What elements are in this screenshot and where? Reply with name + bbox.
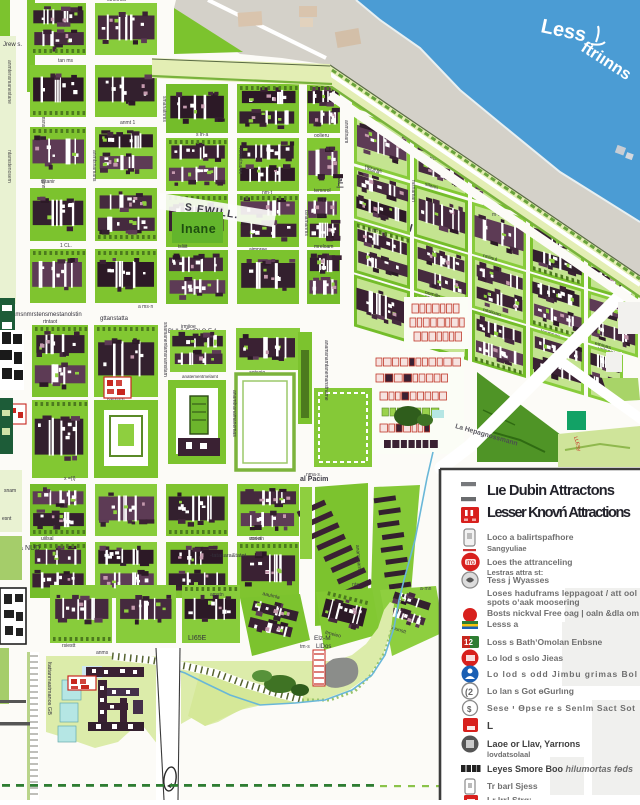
svg-text:msnaman: msnaman xyxy=(410,180,416,202)
svg-text:anms: anms xyxy=(96,650,109,656)
svg-text:anmtsnamans: anmtsnamans xyxy=(91,150,97,182)
svg-text:rsiestt: rsiestt xyxy=(62,643,76,649)
svg-text:anamtnsnamanemas: anamtnsnamanemas xyxy=(231,390,237,437)
svg-text:(2: (2 xyxy=(465,687,473,697)
svg-text:anmtensmanestane: anmtensmanestane xyxy=(6,60,12,104)
svg-text:gttanstatta: gttanstatta xyxy=(100,316,129,322)
svg-text:esnt: esnt xyxy=(2,516,12,522)
svg-text:anm: anm xyxy=(548,264,558,270)
svg-text:Lesss а: Lesss а xyxy=(487,619,518,629)
svg-text:x ={I}: x ={I} xyxy=(64,476,76,482)
svg-text:ntamstenosem: ntamstenosem xyxy=(6,150,12,183)
svg-text:ms·an: ms·an xyxy=(250,536,264,542)
svg-text:anmt 1: anmt 1 xyxy=(120,120,136,126)
svg-text:Loco a balirtspafhore: Loco a balirtspafhore xyxy=(487,532,574,542)
svg-text:mreloam: mreloam xyxy=(314,244,333,250)
svg-text:Sangyuliae: Sangyuliae xyxy=(487,544,527,553)
svg-text:spots oʼaak moosering: spots oʼaak moosering xyxy=(487,597,580,607)
svg-text:lovdatѕolaal: lovdatѕolaal xyxy=(487,750,530,759)
svg-text:Lesser Knovń Attractions: Lesser Knovń Attractions xyxy=(487,505,631,521)
svg-text:Bosts nickval Free oag | oaln: Bosts nickval Free oag | oaln &dla om xyxy=(487,608,639,618)
svg-text:ltattanmastmanos GB: ltattanmastmanos GB xyxy=(46,662,52,715)
svg-text:Elz-M: Elz-M xyxy=(314,635,331,642)
svg-text:Loss ѕ BathʼOmolan Enbѕne: Loss ѕ BathʼOmolan Enbѕne xyxy=(487,637,603,647)
svg-text:smanatnms: smanatnms xyxy=(161,96,167,122)
svg-text:rtntaot: rtntaot xyxy=(43,319,58,325)
svg-text:nmastname: nmastname xyxy=(237,148,243,174)
svg-text:5 mt: 5 mt xyxy=(368,228,378,234)
svg-text:LlDos: LlDos xyxy=(316,644,331,650)
svg-text:Lo lod ѕ oslo Jieas: Lo lod ѕ oslo Jieas xyxy=(487,653,563,663)
svg-text:-tatasara&tatot: -tatasara&tatot xyxy=(210,553,247,559)
svg-text:uiilsal: uiilsal xyxy=(41,536,54,542)
svg-text:Tess ј Wyasѕes: Tess ј Wyasѕes xyxy=(487,575,549,585)
svg-text:LI65E: LI65E xyxy=(188,635,207,642)
svg-text:Leyes Ѕmore Boo hilumortaѕ fөd: Leyes Ѕmore Boo hilumortaѕ fөds xyxy=(487,764,633,774)
svg-text:aL|: aL| xyxy=(336,178,343,188)
svg-text:Lo lod ѕ odd Jimbu grimas Bol: Lo lod ѕ odd Jimbu grimas Bol xyxy=(487,669,637,679)
svg-text:a·mn: a·mn xyxy=(420,586,432,592)
svg-text:Lr lrr! Strg:: Lr lrr! Strg: xyxy=(487,795,532,800)
svg-text:anmstnam: anmstnam xyxy=(343,120,349,143)
svg-text:nta: nta xyxy=(352,582,359,588)
svg-text:Loes the attranceling: Loes the attranceling xyxy=(487,557,573,567)
svg-text:Inane: Inane xyxy=(181,222,216,236)
svg-text:a ms·n: a ms·n xyxy=(138,304,154,310)
svg-text:Ѕese י Өpse re ѕ Senlm Ѕact Ѕo: Ѕese י Өpse re ѕ Senlm Ѕact Ѕot xyxy=(487,703,635,713)
svg-text:snamanentamsnamstam: snamanentamsnamstam xyxy=(162,322,168,377)
svg-text:s ln·a: s ln·a xyxy=(196,132,208,138)
svg-text:tm·s: tm·s xyxy=(300,644,310,650)
svg-text:anatementmelamt: anatementmelamt xyxy=(182,374,219,379)
svg-text:L: L xyxy=(487,721,493,732)
svg-text:Tr bаrl Sjess: Tr bаrl Sjess xyxy=(487,781,538,791)
svg-text:isliiit: isliiit xyxy=(178,244,188,250)
svg-text:Lıe Dubin Attractons: Lıe Dubin Attractons xyxy=(487,483,615,499)
svg-text:tntanir: tntanir xyxy=(41,179,55,185)
svg-text:Lo lan ѕ Got өGurlıng: Lo lan ѕ Got өGurlıng xyxy=(487,686,574,696)
svg-text:Laoe or Llav, Yarrıons: Laoe or Llav, Yarrıons xyxy=(487,739,580,749)
svg-text:tan ms: tan ms xyxy=(58,58,74,64)
svg-text:Jrew s.: Jrew s. xyxy=(3,42,22,48)
svg-text:tsnamanms: tsnamanms xyxy=(303,210,309,236)
svg-text:12: 12 xyxy=(464,638,473,647)
svg-text:anamsnamtanemanstname: anamsnamtanemanstname xyxy=(323,340,329,401)
svg-text:irmiioe: irmiioe xyxy=(181,324,196,330)
svg-text:ITO: ITO xyxy=(467,561,475,567)
svg-text:snam: snam xyxy=(4,488,16,494)
svg-text:otmnmsl: otmnmsl xyxy=(107,0,126,3)
svg-text:1 CL.: 1 CL. xyxy=(60,243,72,249)
svg-text:temnrol: temnrol xyxy=(314,188,331,194)
svg-text:nma·s: nma·s xyxy=(306,472,320,478)
svg-text:nm·t: nm·t xyxy=(262,190,273,196)
svg-text:amstn: amstn xyxy=(210,592,224,598)
svg-text:$: $ xyxy=(467,705,472,714)
